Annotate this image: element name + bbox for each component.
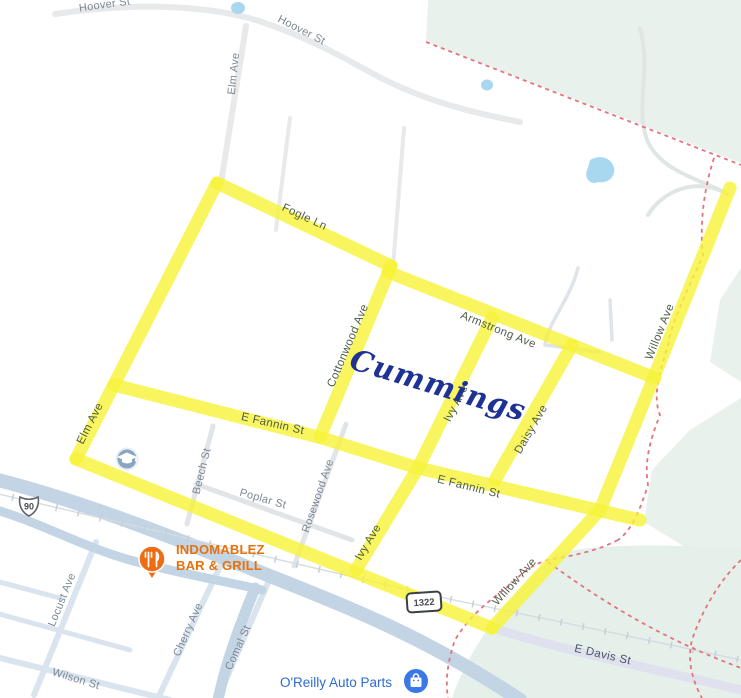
highlight-armstrong-ave <box>388 272 655 378</box>
map-canvas[interactable]: Hoover St Hoover St Elm Ave Fogle Ln Arm… <box>0 0 741 698</box>
highlight-fogle-ln <box>217 183 391 266</box>
pond-large-right <box>586 157 614 183</box>
oreilly-poi-label[interactable]: O'Reilly Auto Parts <box>280 675 392 690</box>
label-hoover-st-1: Hoover St <box>78 0 131 15</box>
oreilly-poi-marker[interactable] <box>403 668 429 694</box>
indomablez-label-line2: BAR & GRILL <box>176 558 262 573</box>
indomablez-label-line1: INDOMABLEZ <box>176 542 265 557</box>
fm-1322-shield-number: 1322 <box>413 597 435 609</box>
us-90-shield-number: 90 <box>24 502 34 512</box>
map-svg: Hoover St Hoover St Elm Ave Fogle Ln Arm… <box>0 0 741 698</box>
oreilly-label: O'Reilly Auto Parts <box>280 675 392 690</box>
school-poi-marker[interactable] <box>116 448 139 471</box>
park-right-sliver <box>710 268 741 382</box>
us-90-shield: 90 <box>20 497 39 516</box>
road-vertical-2 <box>393 128 404 267</box>
label-e-fannin-st-west: E Fannin St <box>240 411 306 437</box>
park-top-right <box>426 0 741 163</box>
pond-small-right <box>481 80 493 91</box>
label-cherry-ave: Cherry Ave <box>171 601 205 658</box>
label-rosewood-ave: Rosewood Ave <box>300 458 336 535</box>
road-cross-2 <box>0 580 60 598</box>
indomablez-poi-label[interactable]: INDOMABLEZ BAR & GRILL <box>176 542 265 573</box>
pond-top-left <box>231 2 245 14</box>
label-wilson-st: Wilson St <box>51 666 102 692</box>
fm-1322-shield: 1322 <box>406 591 441 612</box>
label-elm-ave-north: Elm Ave <box>226 52 242 95</box>
road-elm-ave-north <box>221 26 246 183</box>
indomablez-poi-marker[interactable] <box>139 546 165 578</box>
park-right-mid <box>644 398 741 560</box>
restaurant-icon-bg <box>139 546 165 572</box>
